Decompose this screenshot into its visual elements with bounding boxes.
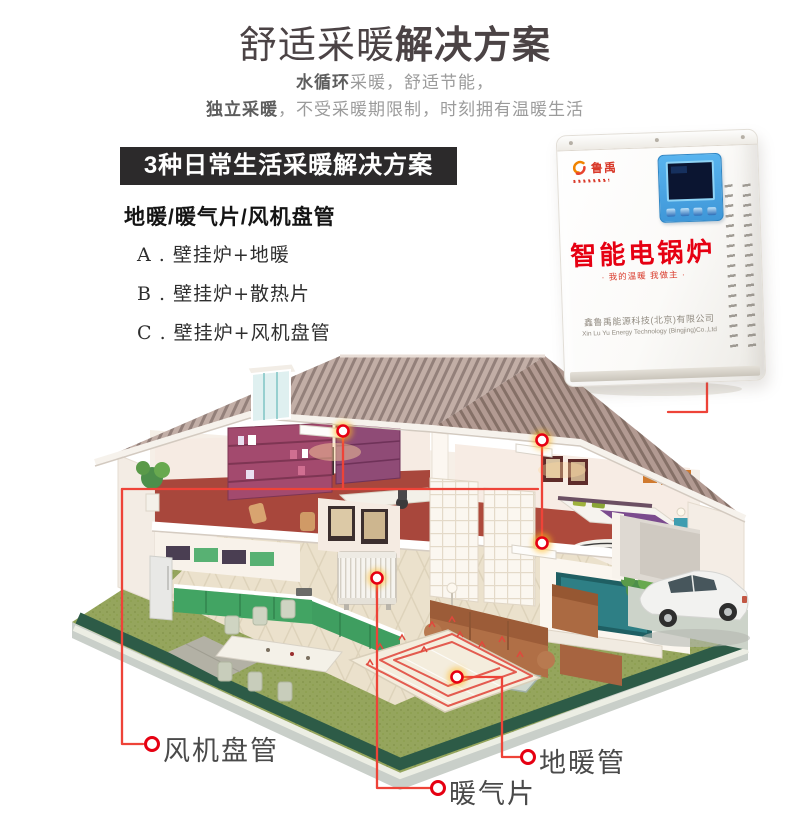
ceiling-glow [538,462,586,478]
boiler-control-panel [657,153,723,223]
brand-name: 鲁禹 [591,158,618,176]
boiler-company: 鑫鲁禹能源科技(北京)有限公司 Xin Lu Yu Energy Technol… [563,310,736,338]
floor-pipe-label-bullet [522,751,535,764]
brand-swirl-icon [571,160,589,178]
fan-coil-dot-living [532,533,552,553]
screw-icon [655,138,659,142]
fan-coil-label-bullet [146,738,159,751]
radiator-dot [367,568,387,588]
fan-coil-dot-bedroom [532,430,552,450]
floor-pipe-label: 地暖管 [539,741,626,780]
brand-logo: 鲁禹 [571,158,618,177]
boiler-buttons [666,207,716,217]
screw-icon [569,141,573,145]
screw-icon [741,135,745,139]
promo-page: 舒适采暖解决方案 水循环采暖，舒适节能， 独立采暖，不受采暖期限制，时刻拥有温暖… [0,0,790,830]
radiator-label-bullet [432,782,445,795]
house-cutaway-illustration [0,0,790,830]
boiler-display-screen [666,160,715,202]
brand-tagline-marks [573,179,609,183]
floor-heating-dot [447,667,467,687]
radiator-label: 暖气片 [449,772,536,811]
ceiling-glow [309,443,361,461]
boiler-product: 鲁禹 智能电锅炉 · 我的温暖 我做主 · 鑫鲁禹能源科技(北京)有限公司 Xi… [556,129,767,388]
fan-coil-dot-upper-left [333,421,353,441]
radiator-illustration [338,552,396,610]
skylight-dormer [248,364,296,422]
boiler-base [570,366,760,383]
fan-coil-label: 风机盘管 [163,729,279,768]
